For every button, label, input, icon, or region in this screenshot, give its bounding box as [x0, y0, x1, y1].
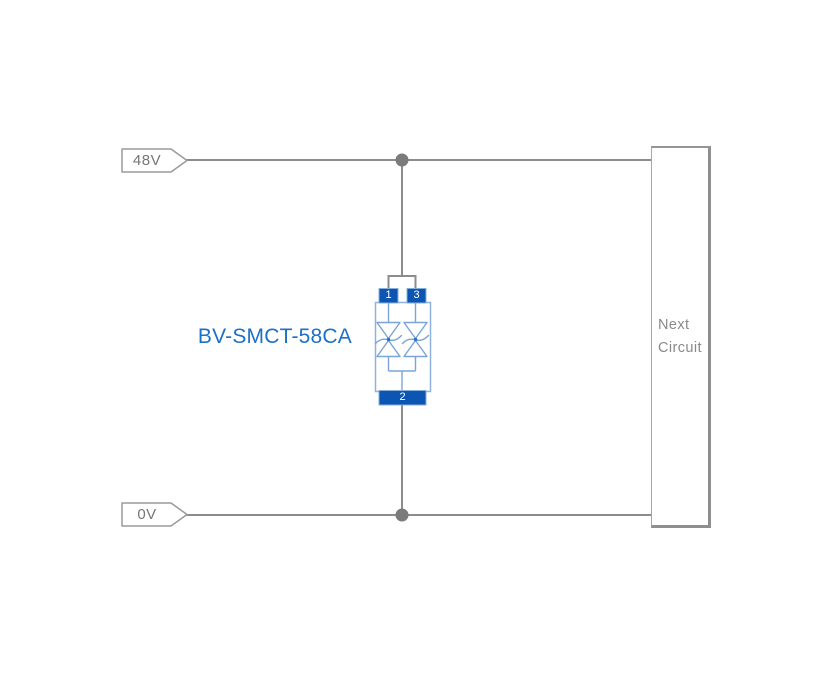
junction-dot-bottom: [396, 509, 409, 522]
rail-label-48v: 48V: [122, 148, 172, 172]
next-circuit-label: Next Circuit: [652, 314, 708, 360]
component-part-number: BV-SMCT-58CA: [190, 325, 352, 349]
tvs-component-symbol: [376, 289, 431, 406]
component-top-lead-wire: [389, 160, 416, 289]
rail-label-0v: 0V: [122, 502, 172, 526]
circuit-diagram-canvas: Next Circuit 48V 0V BV-SMCT-58CA 1 3 2: [0, 0, 832, 675]
pin-label-1: 1: [379, 288, 398, 303]
next-circuit-box: Next Circuit: [651, 146, 711, 528]
pin-label-3: 3: [407, 288, 426, 303]
tvs-right-center-dot: [414, 338, 417, 341]
pin-label-2: 2: [379, 390, 426, 405]
junction-dot-top: [396, 154, 409, 167]
tvs-left-center-dot: [387, 338, 390, 341]
